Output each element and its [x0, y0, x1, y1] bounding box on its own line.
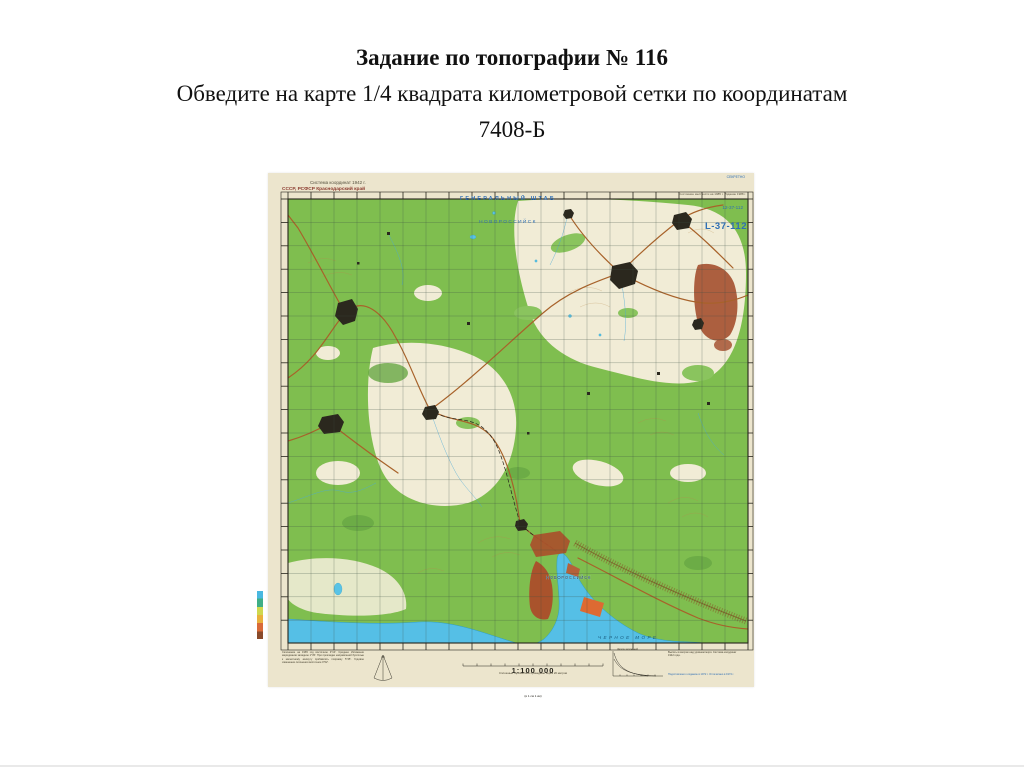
- map-svg: НОВОРОССИЙСК ЧЕРНОЕ МОРЕ: [268, 173, 754, 687]
- heights-note: Высоты в метрах над уровнем моря. Систем…: [668, 651, 740, 658]
- country-note: СССР, РСФСР Краснодарский край: [282, 187, 365, 192]
- sheet-code-label: L-37-112: [705, 221, 747, 232]
- state-note: Состояние местности на 1985 г. Издание 1…: [679, 192, 746, 196]
- sheet-codes: 12-37-112 L-37-112: [705, 180, 747, 234]
- sea-label: ЧЕРНОЕ МОРЕ: [598, 635, 658, 640]
- scale-sub-label: (в 1 см 1 км): [458, 694, 608, 698]
- agency-label: ГЕНЕРАЛЬНЫЙ ШТАБ: [418, 196, 598, 202]
- sheet-name-label: НОВОРОССИЙСК: [418, 220, 598, 225]
- secrecy-label: СЕКРЕТНО: [727, 175, 745, 179]
- slope-scale-label: Шкала заложений: [617, 648, 639, 651]
- declination-note: Склонение на 1965 год восточное 4°10′. С…: [282, 651, 364, 664]
- map-sheet: НОВОРОССИЙСК ЧЕРНОЕ МОРЕ: [268, 173, 754, 687]
- slide-canvas: Задание по топографии № 116 Обведите на …: [0, 0, 1024, 767]
- scale-block: 1:100 000 (в 1 см 1 км): [458, 648, 608, 716]
- task-coordinates: 7408-Б: [0, 112, 1024, 148]
- series-code-label: 12-37-112: [722, 205, 743, 210]
- map-header-center: ГЕНЕРАЛЬНЫЙ ШТАБ НОВОРОССИЙСК: [418, 178, 598, 243]
- contour-interval-note: Сплошные горизонтали проведены через 20 …: [443, 671, 623, 675]
- task-title-line: Задание по топографии № 116: [0, 40, 1024, 76]
- hypsometric-color-strip: [257, 591, 263, 639]
- task-title: Задание по топографии № 116 Обведите на …: [0, 40, 1024, 148]
- coord-system-note: Система координат 1942 г.: [310, 180, 366, 185]
- declination-diagram: [374, 655, 392, 681]
- city-label: НОВОРОССИЙСК: [546, 575, 591, 580]
- print-note: Подготовлено к изданию в 1972 г. Отпечат…: [668, 673, 740, 676]
- task-instruction: Обведите на карте 1/4 квадрата километро…: [0, 76, 1024, 112]
- km-grid: [288, 199, 748, 643]
